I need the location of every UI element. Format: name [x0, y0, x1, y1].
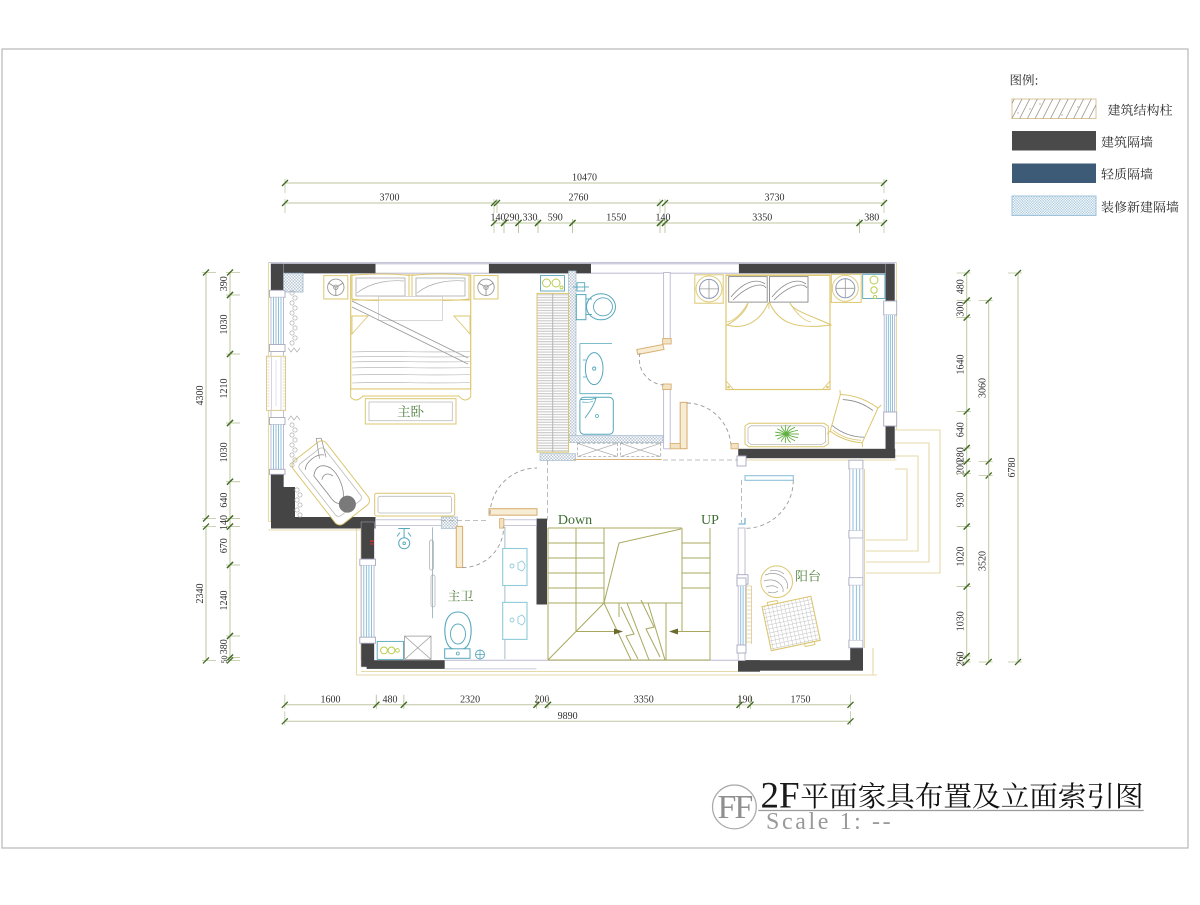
svg-text:200: 200 — [535, 694, 550, 705]
svg-text:140: 140 — [491, 213, 506, 224]
svg-text:1550: 1550 — [606, 213, 626, 224]
svg-text:9890: 9890 — [558, 711, 578, 722]
svg-text:1240: 1240 — [219, 591, 230, 611]
svg-text:390: 390 — [219, 276, 230, 291]
svg-text:FF: FF — [717, 789, 752, 826]
svg-text:480: 480 — [383, 694, 398, 705]
svg-text:1600: 1600 — [321, 694, 341, 705]
svg-text:3350: 3350 — [752, 213, 772, 224]
svg-text:50: 50 — [220, 656, 229, 664]
svg-text:300: 300 — [956, 302, 967, 317]
svg-text:280: 280 — [956, 447, 967, 462]
svg-text:4300: 4300 — [195, 386, 206, 406]
svg-text:2320: 2320 — [460, 694, 480, 705]
svg-text:2760: 2760 — [569, 193, 589, 204]
svg-text:330: 330 — [523, 213, 538, 224]
svg-text:640: 640 — [219, 493, 230, 508]
svg-text:Down: Down — [558, 513, 592, 528]
svg-text:930: 930 — [956, 493, 967, 508]
svg-text:3730: 3730 — [765, 193, 785, 204]
svg-text:1030: 1030 — [956, 611, 967, 631]
svg-text:UP: UP — [701, 513, 719, 528]
svg-text:1750: 1750 — [790, 694, 810, 705]
svg-text:Scale 1: --: Scale 1: -- — [766, 809, 893, 835]
svg-text:200: 200 — [956, 460, 967, 475]
svg-text:380: 380 — [219, 639, 230, 654]
svg-text:3350: 3350 — [634, 694, 654, 705]
svg-text:290: 290 — [505, 213, 520, 224]
svg-text:670: 670 — [219, 538, 230, 553]
svg-text:140: 140 — [656, 213, 671, 224]
svg-text:590: 590 — [548, 213, 563, 224]
svg-text:380: 380 — [864, 213, 879, 224]
svg-text:260: 260 — [956, 652, 967, 667]
svg-text:1640: 1640 — [956, 355, 967, 375]
svg-text:1030: 1030 — [219, 315, 230, 335]
svg-text:3700: 3700 — [380, 193, 400, 204]
svg-text:10470: 10470 — [572, 173, 597, 184]
svg-text:1210: 1210 — [219, 379, 230, 399]
svg-text:3060: 3060 — [978, 378, 989, 398]
svg-text:640: 640 — [956, 422, 967, 437]
svg-text:1020: 1020 — [956, 547, 967, 567]
svg-text:6780: 6780 — [1007, 458, 1018, 478]
svg-text:1030: 1030 — [219, 442, 230, 462]
svg-text:3520: 3520 — [978, 551, 989, 571]
svg-text:2340: 2340 — [195, 584, 206, 604]
svg-text:480: 480 — [956, 279, 967, 294]
